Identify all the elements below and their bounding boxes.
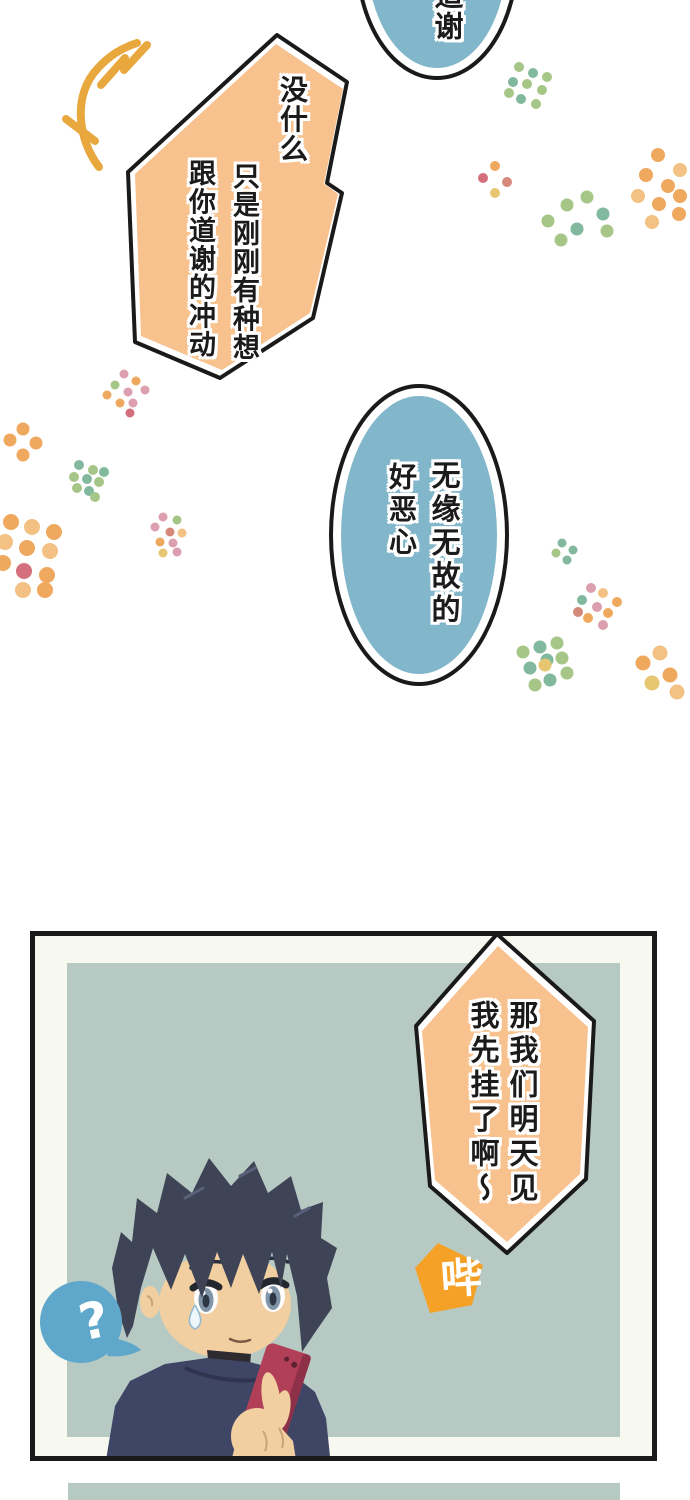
no-biggie-text-col-2: 只是刚刚有种想 xyxy=(224,162,263,362)
top-artwork xyxy=(0,0,690,760)
question-mark-text: ? xyxy=(60,1287,129,1356)
thanks-top-text: 道谢 xyxy=(426,0,468,42)
squiggle-decoration-icon xyxy=(66,43,147,167)
comic-page: 道谢 没什么 只是刚刚有种想 跟你道谢的冲动 无缘无故的 好恶心 xyxy=(0,0,690,1500)
panel-clip-area: 那我们明天见 我先挂了啊～ 哔 ? xyxy=(35,936,652,1456)
hang-up-text-col-1: 那我们明天见 xyxy=(501,1000,543,1207)
no-biggie-text-col-3: 跟你道谢的冲动 xyxy=(180,159,219,359)
no-biggie-text-col-1: 没什么 xyxy=(272,75,312,164)
panel-effects xyxy=(35,936,652,1456)
comic-panel: 那我们明天见 我先挂了啊～ 哔 ? xyxy=(30,931,657,1461)
hang-up-text-col-2: 我先挂了啊～ xyxy=(462,1000,504,1207)
beep-sfx-text: 哔 xyxy=(427,1254,491,1300)
gross-text-col-1: 无缘无故的 xyxy=(423,460,465,628)
gross-text-col-2: 好恶心 xyxy=(381,462,421,560)
next-panel-edge xyxy=(68,1483,620,1500)
